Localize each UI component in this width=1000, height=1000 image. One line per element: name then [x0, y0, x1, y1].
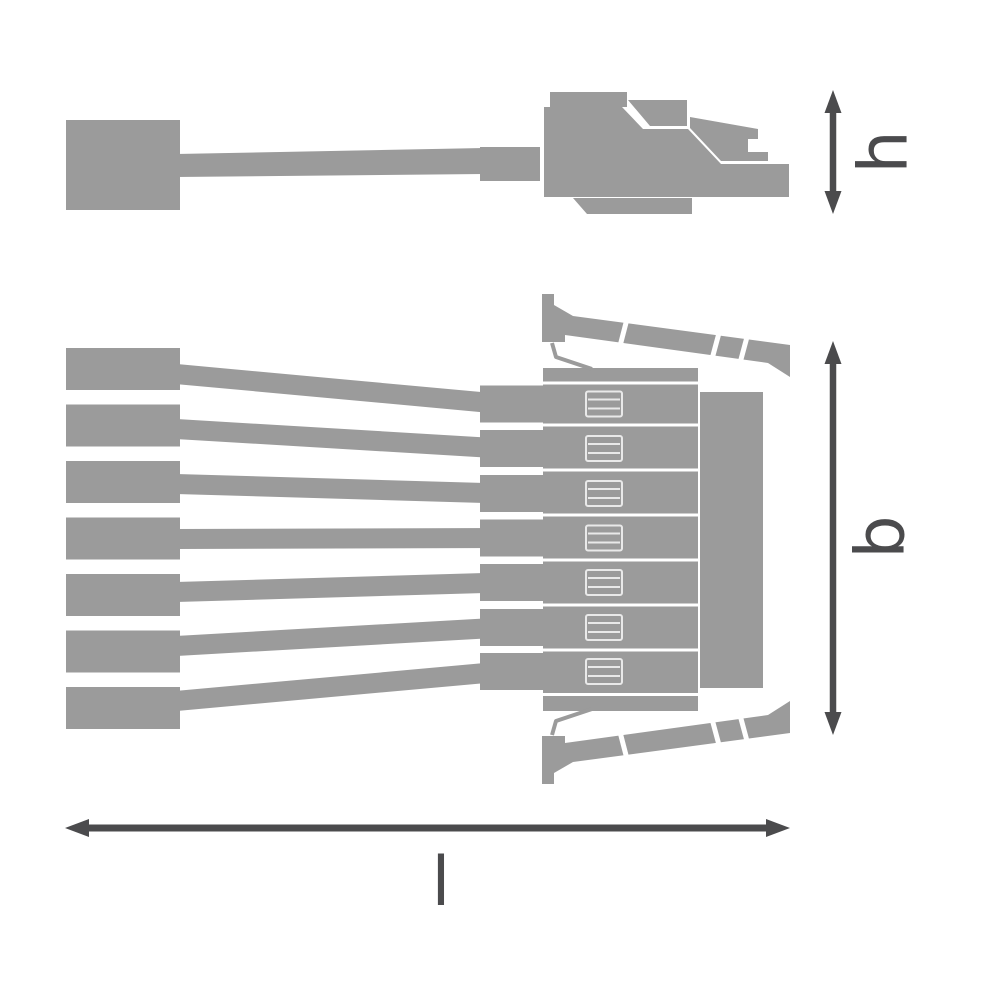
plug-block [66, 348, 180, 390]
wire [176, 374, 502, 404]
dimension-h: h [825, 90, 924, 214]
wire-leads [176, 374, 502, 701]
latch-arm-top [542, 294, 790, 377]
dimension-label-b: b [842, 515, 921, 558]
cable-dimension-diagram: h b l [0, 0, 1000, 1000]
plug-block [66, 574, 180, 616]
dimension-l: l [65, 819, 790, 922]
wire [176, 484, 502, 494]
wire [176, 628, 502, 647]
plug-blocks [66, 348, 180, 729]
terminal-stub [480, 386, 543, 423]
dimension-label-l: l [432, 843, 451, 922]
cable-side-view [66, 92, 789, 214]
terminal-stub [480, 430, 543, 467]
latch-arm-bottom [542, 701, 790, 784]
wire [176, 672, 502, 702]
side-view-plug-block [66, 120, 180, 210]
arrowhead-down-icon [825, 712, 842, 735]
plug-block [66, 687, 180, 729]
wire [176, 429, 502, 449]
dimension-b: b [825, 341, 921, 735]
dimension-drawing-canvas: h b l [0, 0, 1000, 1000]
arrowhead-up-icon [825, 90, 842, 113]
cable-plan-view [66, 294, 790, 784]
housing-nose [700, 392, 763, 688]
dimension-label-h: h [845, 130, 924, 173]
side-view-cable-boot [480, 147, 540, 181]
terminal-stubs [480, 386, 543, 691]
arrowhead-down-icon [825, 191, 842, 214]
plug-block [66, 405, 180, 447]
connector-housing [543, 368, 763, 711]
wire [176, 583, 502, 593]
side-view-bottom-tab [573, 198, 692, 214]
side-view-upper-step [628, 100, 687, 126]
side-view-cable [176, 148, 484, 177]
arrowhead-right-icon [766, 819, 790, 837]
plug-block [66, 631, 180, 673]
arrowhead-up-icon [825, 341, 842, 364]
plug-block [66, 461, 180, 503]
plug-block [66, 518, 180, 560]
terminal-stub [480, 653, 543, 690]
terminal-stub [480, 475, 543, 512]
terminal-stub [480, 520, 543, 557]
arrowhead-left-icon [65, 819, 89, 837]
terminal-stub [480, 564, 543, 601]
wire [176, 538, 502, 539]
side-view-top-tab [550, 92, 627, 107]
terminal-stub [480, 609, 543, 646]
